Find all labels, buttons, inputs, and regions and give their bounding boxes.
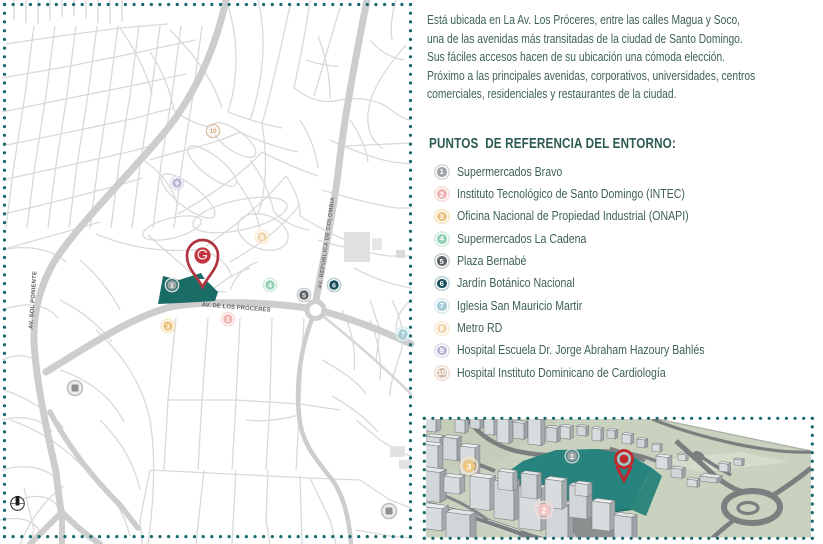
svg-text:6: 6: [332, 282, 336, 289]
svg-text:7: 7: [401, 331, 405, 338]
svg-text:1: 1: [170, 282, 174, 289]
svg-text:3: 3: [166, 323, 170, 330]
svg-text:5: 5: [302, 292, 306, 299]
svg-text:1: 1: [570, 454, 574, 461]
svg-text:4: 4: [268, 282, 272, 289]
svg-text:2: 2: [226, 316, 230, 323]
svg-text:3: 3: [467, 463, 472, 472]
svg-text:9: 9: [175, 180, 179, 187]
svg-text:2: 2: [542, 507, 547, 516]
svg-text:8: 8: [260, 234, 264, 241]
svg-text:AV. REPÚBLICA DE COLOMBIA: AV. REPÚBLICA DE COLOMBIA: [317, 196, 337, 289]
svg-text:10: 10: [209, 128, 217, 135]
